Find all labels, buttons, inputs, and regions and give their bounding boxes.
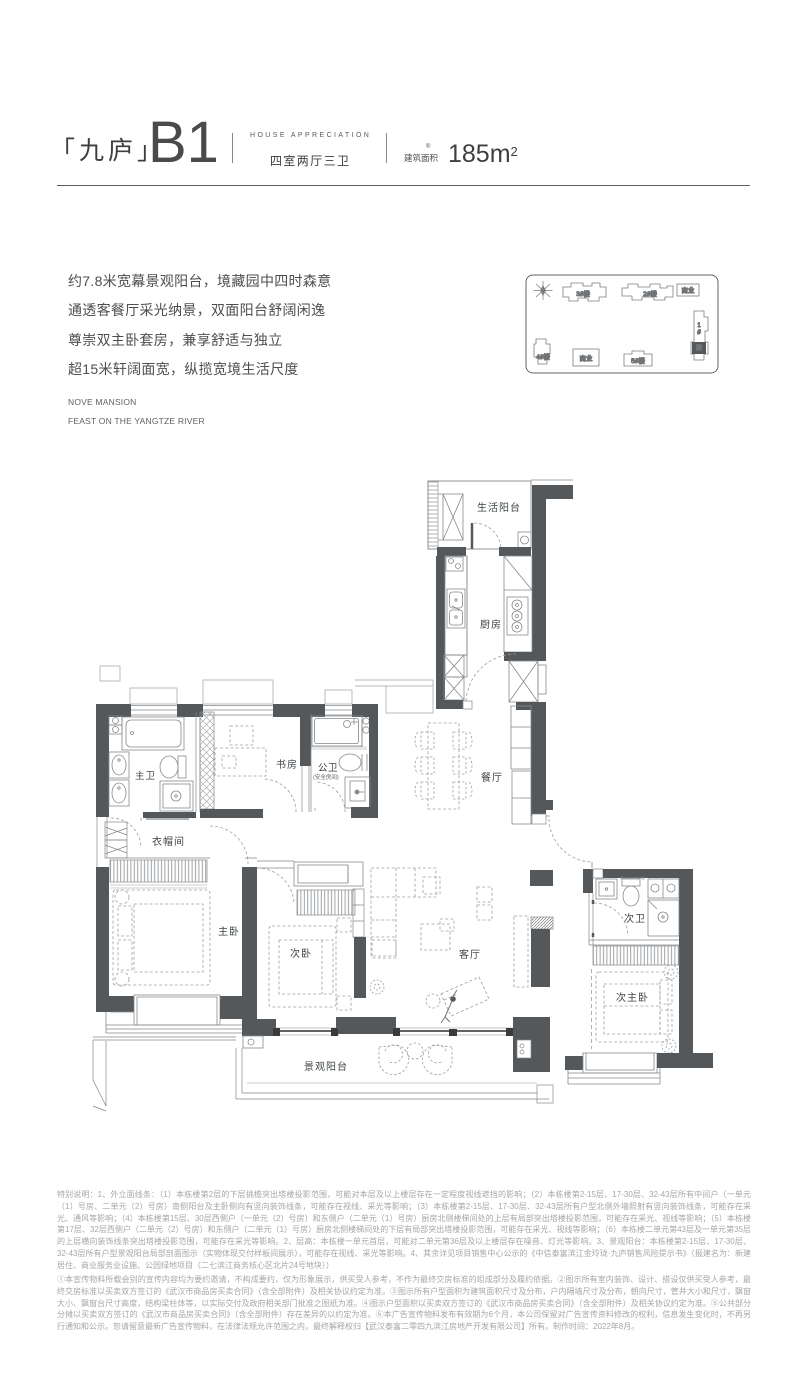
svg-text:3#楼: 3#楼 [576,289,590,298]
svg-text:景观阳台: 景观阳台 [304,1060,348,1073]
svg-text:公卫: 公卫 [318,763,338,774]
svg-text:4#楼: 4#楼 [536,352,550,361]
svg-text:餐厅: 餐厅 [481,771,503,784]
svg-text:楼: 楼 [696,344,702,352]
svg-text:5#楼: 5#楼 [631,356,645,365]
svg-text:厨房: 厨房 [480,618,502,631]
svg-text:书房: 书房 [276,758,298,771]
svg-text:生活阳台: 生活阳台 [477,501,521,514]
svg-text:1: 1 [697,323,701,329]
svg-text:次卧: 次卧 [290,947,312,960]
svg-text:次主卧: 次主卧 [616,991,649,1004]
svg-text:2#楼: 2#楼 [643,289,657,298]
svg-text:商业: 商业 [682,286,696,295]
svg-text:客厅: 客厅 [459,948,481,961]
svg-text:主卧: 主卧 [218,925,240,938]
svg-text:(安全房间): (安全房间) [313,773,339,781]
svg-text:#: # [697,330,701,336]
svg-text:次卫: 次卫 [624,912,646,925]
svg-text:商业: 商业 [580,354,594,363]
svg-text:主卫: 主卫 [135,770,156,782]
svg-text:衣帽间: 衣帽间 [152,835,185,848]
